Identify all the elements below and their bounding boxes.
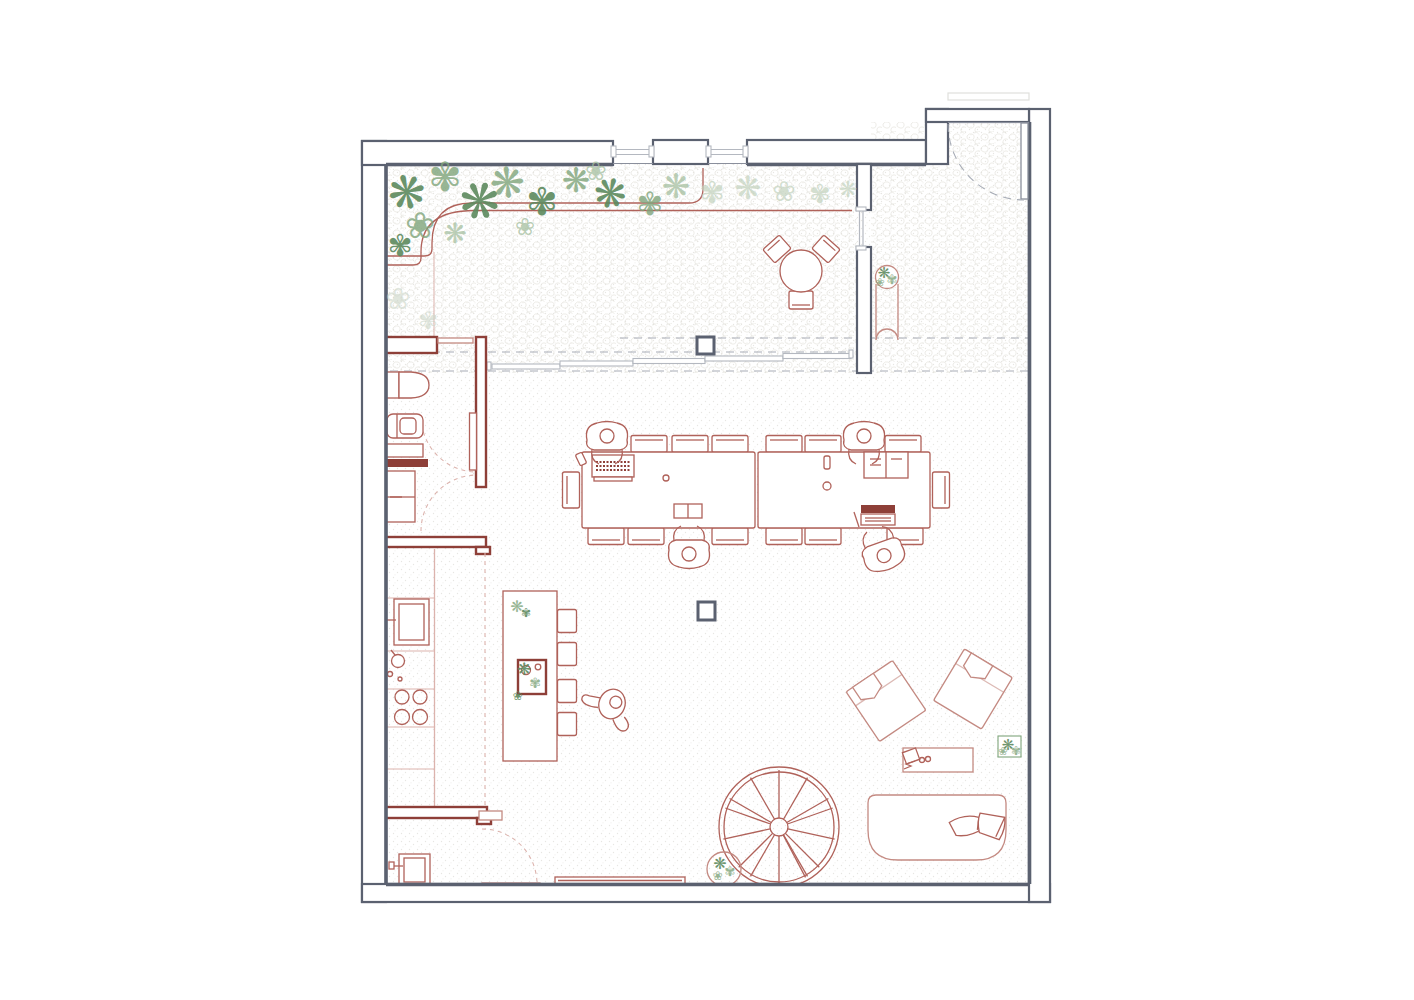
chair	[672, 436, 708, 453]
floor-plan-drawing: ❋ ✾ ❋ ❀ ✾ ❋ ❋ ✾ ❋ ❀ ❋ ✾ ❀ ❋ ✾ ❋ ❀ ✾ ❋ ❀ …	[0, 0, 1414, 1000]
chair	[588, 528, 624, 545]
partition-wall	[857, 164, 871, 210]
plant-icon: ❋	[735, 169, 762, 207]
bar-stool	[558, 680, 577, 703]
chair	[805, 436, 841, 453]
plant-icon: ✾	[887, 272, 898, 287]
structural-column	[697, 337, 714, 354]
window	[611, 146, 654, 164]
chair	[766, 436, 802, 453]
wall-notch-top	[926, 109, 1029, 122]
coffee-table	[902, 748, 973, 772]
bar-stool	[558, 713, 577, 736]
plant-icon: ✾	[637, 185, 664, 223]
entry-threshold	[948, 93, 1029, 100]
plant-icon: ❋	[662, 166, 691, 206]
bathroom-wall	[383, 337, 437, 353]
window	[706, 146, 748, 164]
round-table	[780, 250, 822, 292]
floor-plan-page: ❋ ✾ ❋ ❀ ✾ ❋ ❋ ✾ ❋ ❀ ❋ ✾ ❀ ❋ ✾ ❋ ❀ ✾ ❋ ❀ …	[0, 0, 1414, 1000]
daybed	[868, 795, 1007, 860]
chair	[933, 472, 950, 508]
toilet	[385, 372, 429, 398]
wall-right	[1029, 109, 1050, 902]
plant-icon: ✾	[428, 154, 462, 200]
plant-icon: ❀	[875, 276, 884, 289]
bar-stool	[558, 643, 577, 666]
remote	[824, 456, 830, 469]
plant-icon: ✾	[1011, 744, 1021, 758]
washbasin-counter	[385, 444, 423, 457]
plant-icon: ❀	[585, 156, 607, 186]
cabinet	[385, 471, 415, 522]
bathroom-wall	[476, 337, 486, 487]
partition-wall	[857, 247, 871, 373]
bathroom-wall	[382, 537, 486, 547]
open-book	[674, 504, 702, 518]
open-book	[864, 452, 908, 478]
plant-icon: ❋	[443, 217, 466, 250]
sliding-panel	[560, 361, 633, 366]
plant-icon: ❀	[513, 689, 523, 703]
wall-bottom	[362, 884, 1050, 902]
door-leaf	[1021, 123, 1028, 199]
sliding-panel	[783, 354, 851, 359]
wall-step	[476, 547, 490, 554]
wall-top-right	[747, 140, 926, 164]
plant-icon: ✾	[809, 179, 831, 209]
plant-icon: ❀	[772, 175, 795, 208]
chair	[628, 528, 664, 545]
slide-track-end	[487, 362, 491, 370]
plant-icon: ✾	[418, 307, 438, 335]
chair	[805, 528, 841, 545]
wall-left	[362, 141, 386, 902]
chair	[885, 436, 921, 453]
sliding-panel	[705, 356, 783, 361]
chair	[563, 472, 580, 508]
toilet	[387, 414, 423, 438]
bar-stool	[558, 610, 577, 633]
plant-icon: ✾	[387, 228, 412, 263]
sliding-panel	[492, 364, 560, 369]
plant-icon: ✾	[725, 864, 736, 879]
plant-icon: ✾	[699, 175, 724, 210]
chair	[712, 436, 748, 453]
plant-icon: ✾	[521, 606, 531, 620]
plant-icon: ❀	[515, 213, 535, 241]
chair	[631, 436, 667, 453]
plant-icon: ❀	[385, 281, 410, 316]
door-jamb	[479, 811, 502, 820]
wall-pier	[653, 140, 708, 164]
red-wall-segment	[383, 807, 487, 818]
door-leaf	[470, 413, 477, 470]
structural-column	[698, 602, 715, 620]
plant-icon: ❀	[713, 869, 723, 883]
shelf	[384, 459, 428, 467]
chair	[712, 528, 748, 545]
sliding-panel	[633, 359, 705, 364]
laptop	[592, 455, 634, 481]
chair	[766, 528, 802, 545]
door-threshold	[438, 338, 473, 343]
slide-track-end	[849, 350, 853, 358]
plant-icon: ❋	[839, 177, 857, 202]
plant-icon: ✾	[529, 675, 541, 691]
plant-icon: ❀	[998, 745, 1007, 758]
